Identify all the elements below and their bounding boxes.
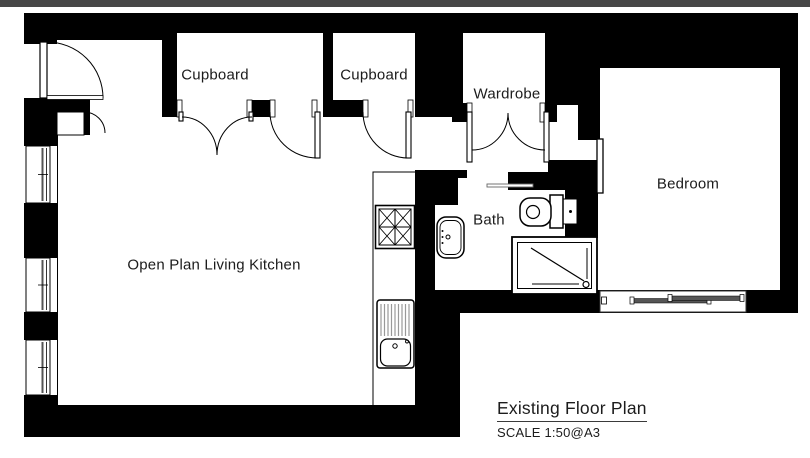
kitchen-counter-outline	[373, 172, 415, 405]
room-label-living-kitchen: Open Plan Living Kitchen	[127, 257, 300, 274]
toilet-symbol	[520, 195, 577, 228]
bedroom-door-leaf	[597, 139, 603, 193]
sliding-window-symbol	[600, 291, 746, 312]
room-label-cupboard-1: Cupboard	[181, 67, 248, 84]
plan-scale: SCALE 1:50@A3	[497, 425, 647, 440]
room-label-cupboard-2: Cupboard	[340, 67, 407, 84]
sink-drainer-symbol	[377, 300, 414, 368]
hob-symbol	[376, 206, 415, 249]
basin-symbol	[437, 217, 464, 258]
room-label-bath: Bath	[473, 212, 505, 229]
plan-title: Existing Floor Plan	[497, 398, 647, 422]
shower-tray-symbol	[512, 237, 597, 294]
window-symbol	[26, 340, 50, 395]
meter-cupboard-door-symbol	[57, 112, 105, 135]
room-label-wardrobe: Wardrobe	[474, 86, 541, 103]
window-symbol	[26, 258, 50, 312]
door-swing-arcs	[182, 112, 545, 158]
bath-door-line	[487, 184, 533, 187]
title-block: Existing Floor Plan SCALE 1:50@A3	[497, 398, 647, 440]
window-symbol	[26, 146, 50, 203]
entry-door-symbol	[40, 42, 103, 100]
floor-plan: Cupboard Cupboard Wardrobe Bedroom Bath …	[0, 0, 810, 458]
room-label-bedroom: Bedroom	[657, 176, 719, 193]
